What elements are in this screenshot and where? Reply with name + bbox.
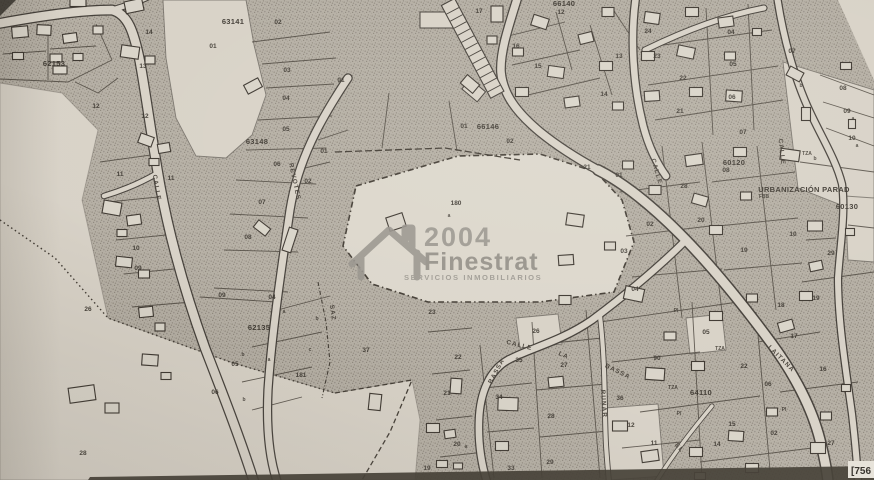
building xyxy=(645,367,665,380)
parcel-number: 09 xyxy=(843,108,851,115)
building xyxy=(566,213,585,227)
building xyxy=(62,33,77,44)
building xyxy=(692,362,705,371)
parcel-number: 90 xyxy=(653,355,661,362)
parcel-number: 36 xyxy=(616,395,624,402)
parcel-number: 28 xyxy=(547,413,555,420)
parcel-number: 17 xyxy=(790,333,798,340)
building xyxy=(613,421,628,431)
parcel-number: 26 xyxy=(84,306,92,313)
parcel-number: 24 xyxy=(644,28,652,35)
sub-label: a xyxy=(856,143,859,149)
parcel-number: 07 xyxy=(258,199,266,206)
parcel-number: 21 xyxy=(676,108,684,115)
parcel-number: 05 xyxy=(282,126,290,133)
building xyxy=(842,385,851,392)
building xyxy=(644,12,660,25)
building xyxy=(841,63,852,70)
building xyxy=(444,429,456,438)
parcel-number: 14 xyxy=(713,441,721,448)
building xyxy=(649,186,661,195)
building xyxy=(548,376,564,388)
building xyxy=(725,52,736,60)
parcel-number: 28 xyxy=(680,183,688,190)
parcel-number: 180 xyxy=(451,200,462,207)
parcel-number: 08 xyxy=(722,167,730,174)
building xyxy=(450,378,462,394)
parcel-number: 12 xyxy=(627,422,635,429)
sub-label: PI xyxy=(674,308,679,314)
parcel-number: 01 xyxy=(337,77,345,84)
building xyxy=(802,108,811,121)
parcel-number: 27 xyxy=(560,362,568,369)
parcel-number: 03 xyxy=(283,67,291,74)
building xyxy=(718,16,734,28)
building xyxy=(767,408,778,416)
parcel-number: 21 xyxy=(443,390,451,397)
sub-label: FBB xyxy=(759,194,770,200)
building xyxy=(142,354,159,366)
parcel-number: 08 xyxy=(839,85,847,92)
building xyxy=(600,62,613,71)
parcel-number: 22 xyxy=(740,363,748,370)
building xyxy=(846,229,855,236)
parcel-number: 06 xyxy=(728,94,736,101)
sub-label: a xyxy=(448,213,451,219)
parcel-number: 19 xyxy=(812,295,820,302)
parcel-number: 12 xyxy=(92,103,100,110)
building xyxy=(641,449,659,462)
building xyxy=(728,430,744,441)
parcel-number: 13 xyxy=(139,63,147,70)
building xyxy=(116,256,133,268)
sub-label: a xyxy=(465,444,468,450)
parcel-number: 02 xyxy=(274,19,282,26)
parcel-number: 01 xyxy=(615,172,623,179)
building xyxy=(664,332,676,340)
block-number: 60130 xyxy=(836,202,858,211)
building xyxy=(559,296,571,305)
sub-label: b xyxy=(799,83,802,89)
block-number: 63141 xyxy=(222,17,244,26)
building xyxy=(149,159,159,166)
building xyxy=(623,161,634,169)
building xyxy=(13,53,24,60)
cadastral-map: 0102030405060708090414131212111110092628… xyxy=(0,0,874,480)
parcel-number: 15 xyxy=(728,421,736,428)
building xyxy=(685,153,703,166)
building xyxy=(68,385,96,403)
parcel-number: 20 xyxy=(697,217,705,224)
watermark-subtitle: SERVICIOS INMOBILIARIOS xyxy=(404,273,542,282)
building xyxy=(454,463,463,469)
parcel-number: 21 xyxy=(583,164,591,171)
block-number: 63148 xyxy=(246,137,268,146)
building xyxy=(800,292,813,301)
block-number: 66140 xyxy=(553,0,575,8)
parcel-number: 23 xyxy=(428,309,436,316)
parcel-number: 11 xyxy=(117,171,124,178)
parcel-number: 04 xyxy=(282,95,290,102)
building xyxy=(12,26,29,38)
parcel-number: 26 xyxy=(532,328,540,335)
block-number: 64110 xyxy=(690,388,712,397)
block-number: 62135 xyxy=(248,323,270,332)
block-number: 60120 xyxy=(723,158,745,167)
map-sheet-ref: [756 xyxy=(848,461,874,478)
parcel-number: 12 xyxy=(557,9,565,16)
building xyxy=(547,65,564,78)
parcel-number: 33 xyxy=(507,465,515,472)
parcel-number: 15 xyxy=(534,63,542,70)
parcel-number: 34 xyxy=(495,394,503,401)
parcel-number: 06 xyxy=(764,381,772,388)
parcel-number: 02 xyxy=(770,430,778,437)
parcel-number: 11 xyxy=(168,175,175,182)
building xyxy=(155,323,165,331)
parcel-number: 04 xyxy=(631,286,639,293)
building xyxy=(487,36,497,44)
building xyxy=(686,8,699,17)
building xyxy=(157,143,170,154)
sub-label: b xyxy=(315,316,318,322)
parcel-number: 29 xyxy=(827,250,835,257)
building xyxy=(427,424,440,433)
sub-label: c xyxy=(309,347,312,353)
block-number: 66146 xyxy=(477,122,499,131)
parcel-number: 01 xyxy=(209,43,217,50)
parcel-number: 20 xyxy=(453,441,461,448)
building xyxy=(613,102,624,110)
parcel-number: 28 xyxy=(79,450,87,457)
parcel-number: 18 xyxy=(777,302,785,309)
parcel-number: 19 xyxy=(423,465,431,472)
parcel-number: 10 xyxy=(132,245,140,252)
parcel-number: 07 xyxy=(739,129,747,136)
parcel-number: 35 xyxy=(515,357,523,364)
parcel-number: 29 xyxy=(546,459,554,466)
sub-label: TZA xyxy=(715,346,725,352)
block-number: URBANIZACIÓN PARAD xyxy=(758,185,850,194)
parcel-number: 01 xyxy=(320,148,328,155)
sub-label: TZA xyxy=(668,385,678,391)
building xyxy=(690,448,703,457)
parcel-number: 23 xyxy=(653,53,661,60)
building xyxy=(102,200,122,216)
building xyxy=(139,306,154,317)
building xyxy=(747,294,758,302)
parcel-number: 02 xyxy=(304,178,312,185)
building xyxy=(558,254,574,265)
building xyxy=(753,29,762,36)
parcel-number: 14 xyxy=(145,29,153,36)
parcel-number: 06 xyxy=(273,161,281,168)
parcel-number: 05 xyxy=(702,329,710,336)
building xyxy=(564,96,580,108)
parcel-number: 12 xyxy=(141,113,149,120)
building xyxy=(437,461,448,468)
parcel-number: 05 xyxy=(729,61,737,68)
sub-label: a xyxy=(283,309,286,315)
parcel-number: 07 xyxy=(788,48,796,55)
sub-label: TZA xyxy=(802,151,812,157)
parcel-number: 14 xyxy=(600,91,608,98)
building xyxy=(741,192,752,200)
building xyxy=(368,393,382,410)
parcel-number: 22 xyxy=(679,75,687,82)
watermark-name: Finestrat xyxy=(424,248,539,276)
parcel-number: 09 xyxy=(218,292,226,299)
building xyxy=(710,312,723,321)
building xyxy=(516,88,529,97)
building xyxy=(710,226,723,235)
sub-label: PI xyxy=(677,411,682,417)
parcel-number: 37 xyxy=(362,347,370,354)
parcel-number: 181 xyxy=(296,372,307,379)
parcel-number: 10 xyxy=(789,231,797,238)
parcel-number: 09 xyxy=(134,265,142,272)
parcel-number: 02 xyxy=(506,138,514,145)
building xyxy=(37,25,52,36)
sub-label: a xyxy=(268,357,271,363)
building xyxy=(117,230,127,237)
parcel-number: 03 xyxy=(620,248,628,255)
sheet-ref-text: [756 xyxy=(851,466,871,477)
parcel-number: 17 xyxy=(475,8,483,15)
sub-label: PI xyxy=(782,407,787,413)
sub-label: a xyxy=(852,116,855,122)
building xyxy=(73,54,83,61)
parcel-number: 06 xyxy=(211,389,219,396)
parcel-number: 27 xyxy=(827,440,835,447)
map-photo: 0102030405060708090414131212111110092628… xyxy=(0,0,874,480)
building xyxy=(605,242,616,250)
parcel-number: 16 xyxy=(819,366,827,373)
sub-label: b xyxy=(242,397,245,403)
parcel-number: 22 xyxy=(454,354,462,361)
building xyxy=(690,88,703,97)
block-number: 62153 xyxy=(43,59,65,68)
building xyxy=(126,214,141,226)
building xyxy=(821,412,832,420)
building xyxy=(120,45,139,59)
parcel-number: 10 xyxy=(848,135,856,142)
building xyxy=(809,260,824,272)
building xyxy=(734,148,747,157)
parcel-number: 02 xyxy=(646,221,654,228)
building xyxy=(602,8,614,17)
building xyxy=(93,26,103,34)
parcel-number: 11 xyxy=(651,440,658,447)
building xyxy=(491,6,503,22)
building xyxy=(70,0,86,7)
building xyxy=(105,403,119,413)
parcel-number: 08 xyxy=(244,234,252,241)
sub-label: b xyxy=(813,156,816,162)
building xyxy=(161,373,171,380)
parcel-number: 01 xyxy=(460,123,468,130)
parcel-number: 16 xyxy=(512,43,520,50)
parcel-number: 05 xyxy=(231,361,239,368)
parcel-number: 13 xyxy=(615,53,623,60)
sub-label: b xyxy=(241,352,244,358)
building xyxy=(811,443,826,454)
building xyxy=(496,442,509,451)
parcel-number: 04 xyxy=(268,294,276,301)
building xyxy=(808,221,823,231)
building xyxy=(644,90,660,101)
parcel-number: 04 xyxy=(727,29,735,36)
parcel-number: 19 xyxy=(740,247,748,254)
